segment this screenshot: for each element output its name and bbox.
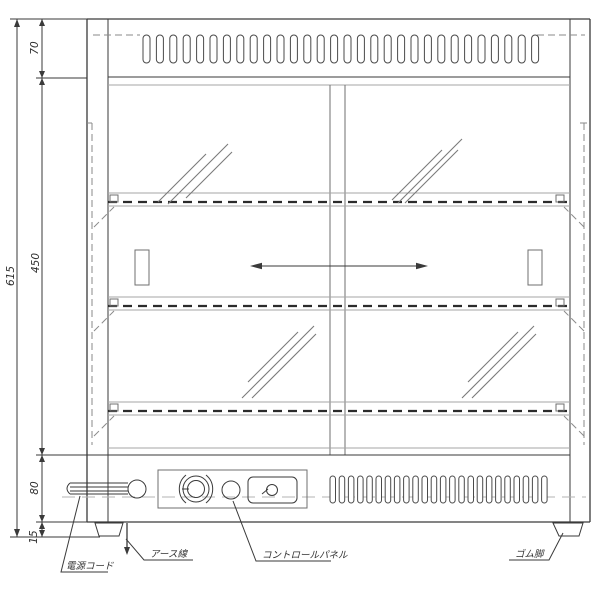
vent-slot <box>477 476 483 503</box>
vent-slot <box>385 476 391 503</box>
vent-slot <box>398 35 405 63</box>
vent-slot <box>330 476 336 503</box>
vent-slot <box>367 476 373 503</box>
dim-80: 80 <box>29 481 41 495</box>
vent-slot <box>394 476 400 503</box>
vent-slot <box>424 35 431 63</box>
vent-slot <box>514 476 520 503</box>
vent-slot <box>376 476 382 503</box>
vent-slot <box>440 476 446 503</box>
vent-slot <box>358 476 364 503</box>
vent-slot <box>518 35 525 63</box>
vent-slot <box>523 476 529 503</box>
vent-slot <box>451 35 458 63</box>
vent-slot <box>496 476 502 503</box>
vent-slot <box>438 35 445 63</box>
vent-slot <box>384 35 391 63</box>
vent-slot <box>143 35 150 63</box>
technical-drawing-page: 615 70 450 80 15 電源コード アース線 コントロールパネル ゴム… <box>0 0 610 610</box>
vent-slot <box>411 35 418 63</box>
label-power-cord: 電源コード <box>66 561 114 572</box>
vent-slot <box>339 476 345 503</box>
vent-slot <box>505 476 511 503</box>
vent-slot <box>459 476 465 503</box>
vent-slot <box>532 35 539 63</box>
technical-drawing: 615 70 450 80 15 電源コード アース線 コントロールパネル ゴム… <box>0 0 610 610</box>
vent-slot <box>404 476 410 503</box>
vent-slot <box>542 476 548 503</box>
label-earth-wire: アース線 <box>150 549 188 560</box>
vent-slot <box>344 35 351 63</box>
vent-slot <box>450 476 456 503</box>
vent-slot <box>183 35 190 63</box>
vent-slot <box>290 35 297 63</box>
dim-15: 15 <box>28 530 40 544</box>
vent-slot <box>491 35 498 63</box>
vent-slot <box>250 35 257 63</box>
vent-slot <box>465 35 472 63</box>
dim-450: 450 <box>30 253 42 273</box>
vent-slot <box>413 476 419 503</box>
vent-slot <box>237 35 244 63</box>
vent-slot <box>210 35 217 63</box>
vent-slot <box>505 35 512 63</box>
dim-70: 70 <box>29 41 41 55</box>
label-rubber-foot: ゴム脚 <box>515 548 545 560</box>
vent-slot <box>317 35 324 63</box>
vent-slot <box>223 35 230 63</box>
vent-slot <box>156 35 163 63</box>
vent-slot <box>371 35 378 63</box>
vent-slot <box>277 35 284 63</box>
vent-slot <box>486 476 492 503</box>
vent-slot <box>331 35 338 63</box>
label-control-panel: コントロールパネル <box>262 550 348 561</box>
vent-slot <box>478 35 485 63</box>
vent-slot <box>468 476 474 503</box>
vent-slot <box>532 476 538 503</box>
dim-615: 615 <box>5 266 17 286</box>
vent-slot <box>170 35 177 63</box>
vent-slot <box>357 35 364 63</box>
vent-slot <box>197 35 204 63</box>
vent-slot <box>348 476 354 503</box>
vent-slot <box>304 35 311 63</box>
vent-slot <box>431 476 437 503</box>
vent-slot <box>264 35 271 63</box>
vent-slot <box>422 476 428 503</box>
